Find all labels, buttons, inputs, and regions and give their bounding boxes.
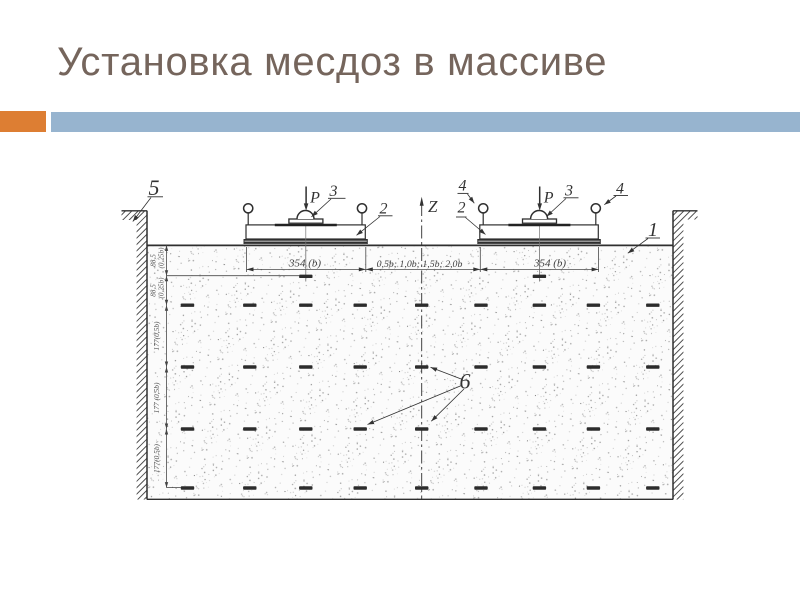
- svg-text:4: 4: [459, 178, 467, 195]
- svg-text:P: P: [543, 189, 554, 206]
- svg-text:354 (b): 354 (b): [288, 258, 321, 270]
- svg-text:3: 3: [329, 183, 338, 200]
- svg-text:177(0,5b): 177(0,5b): [152, 443, 161, 472]
- svg-text:177(0,5b): 177(0,5b): [152, 321, 161, 350]
- svg-text:0,5b; 1,0b; 1,5b; 2,0b: 0,5b; 1,0b; 1,5b; 2,0b: [377, 259, 463, 270]
- svg-text:3: 3: [564, 183, 573, 200]
- svg-text:2: 2: [458, 200, 466, 217]
- svg-text:88,5: 88,5: [150, 254, 158, 267]
- svg-text:354 (b): 354 (b): [533, 258, 566, 270]
- svg-text:88,5: 88,5: [150, 284, 158, 297]
- svg-text:(0,25b): (0,25b): [157, 247, 165, 269]
- svg-text:P: P: [309, 189, 320, 206]
- svg-text:4: 4: [616, 181, 624, 198]
- svg-text:5: 5: [149, 175, 160, 200]
- svg-text:2: 2: [380, 201, 388, 218]
- svg-text:Z: Z: [428, 197, 438, 216]
- svg-text:6: 6: [460, 369, 471, 394]
- svg-text:177 (0,5b): 177 (0,5b): [152, 382, 161, 413]
- svg-text:(0,25b): (0,25b): [157, 277, 165, 299]
